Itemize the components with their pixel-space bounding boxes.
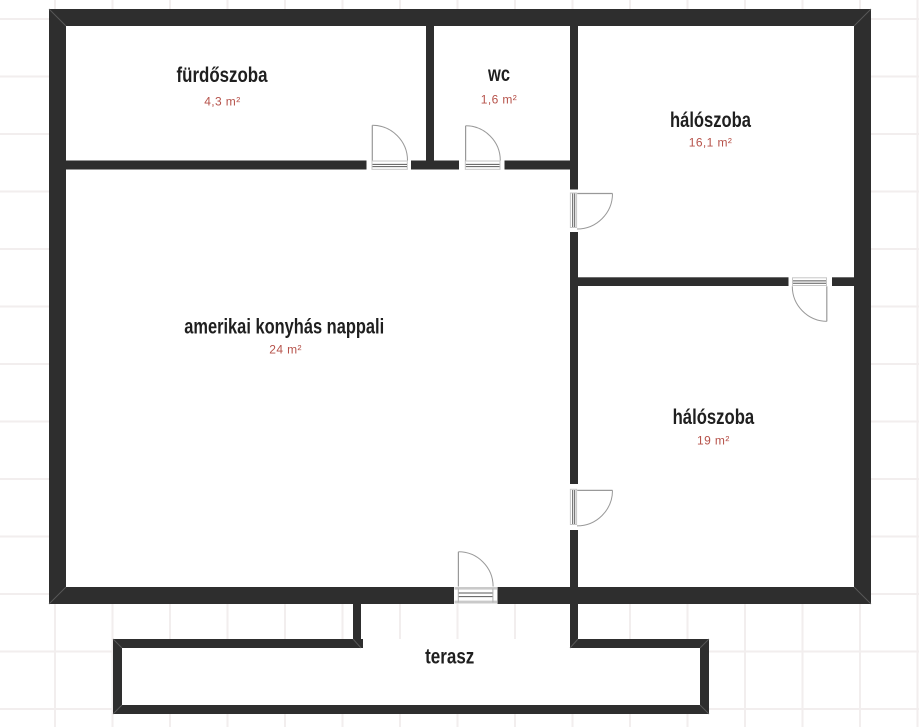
- svg-text:fürdőszoba: fürdőszoba: [177, 64, 268, 87]
- svg-text:wc: wc: [487, 63, 510, 86]
- svg-text:4,3 m²: 4,3 m²: [204, 94, 240, 108]
- svg-text:hálószoba: hálószoba: [673, 406, 755, 429]
- svg-text:amerikai konyhás nappali: amerikai konyhás nappali: [184, 316, 384, 339]
- svg-text:16,1 m²: 16,1 m²: [689, 136, 732, 150]
- svg-text:hálószoba: hálószoba: [670, 109, 751, 132]
- svg-text:19 m²: 19 m²: [697, 434, 730, 448]
- svg-text:24 m²: 24 m²: [269, 342, 302, 356]
- svg-text:terasz: terasz: [425, 646, 474, 669]
- svg-text:1,6 m²: 1,6 m²: [481, 92, 517, 106]
